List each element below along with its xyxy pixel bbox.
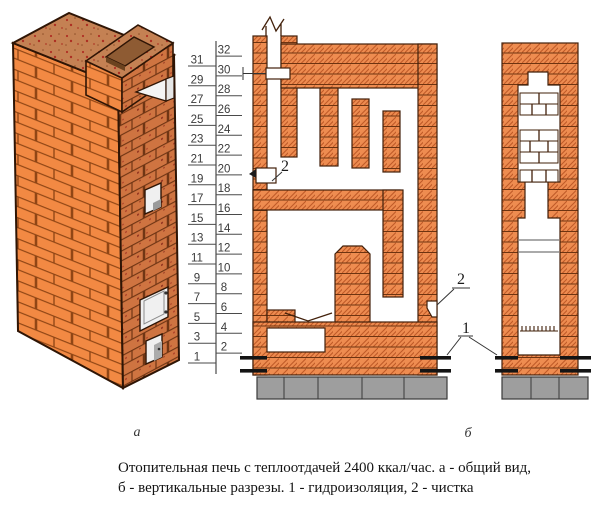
view-label-b: б [464, 426, 472, 441]
baffle-1 [320, 88, 338, 166]
firebox-back-column [335, 246, 370, 324]
callout-leader [437, 288, 470, 305]
scale-number: 8 [221, 282, 227, 294]
callout-leader [447, 336, 497, 355]
scale-number: 17 [191, 193, 204, 205]
scale-number: 27 [191, 94, 204, 106]
ash-pit [267, 328, 325, 352]
waterproofing-line [495, 369, 518, 373]
firebox-door-hinge [164, 310, 167, 313]
stove-3d-view [13, 13, 179, 388]
scale-number: 15 [191, 213, 204, 225]
scale-number: 28 [218, 84, 231, 96]
top-slab [281, 44, 437, 88]
baffle-2 [352, 99, 369, 168]
caption-line-2: б - вертикальные разрезы. 1 - гидроизоля… [118, 478, 588, 498]
scale-number: 1 [194, 352, 200, 364]
under-door-block [267, 310, 295, 323]
scale-number: 9 [194, 272, 200, 284]
section-front [240, 17, 451, 399]
scale-number: 3 [194, 332, 200, 344]
section-side [495, 43, 591, 399]
scale-number: 25 [191, 114, 204, 126]
firebox-door-hinge [164, 291, 167, 294]
foundation-front [257, 377, 447, 399]
ash-door-knob [158, 348, 161, 351]
scale-number: 29 [191, 74, 204, 86]
callout-cleanout-right: 2 [457, 271, 465, 288]
caption-line-1: Отопительная печь с теплоотдачей 2400 кк… [118, 458, 588, 478]
scale-number: 32 [218, 45, 231, 57]
scale-number: 5 [194, 312, 200, 324]
descending-wall [383, 190, 403, 297]
chimney-break [262, 17, 284, 36]
scale-number: 24 [218, 124, 231, 136]
scale-number: 16 [218, 203, 231, 215]
scale-number: 12 [218, 243, 231, 255]
scale-number: 19 [191, 173, 204, 185]
scale-number: 10 [218, 262, 231, 274]
waterproofing-line [560, 356, 591, 360]
baffle-3 [383, 111, 400, 172]
scale-number: 30 [218, 64, 231, 76]
scale-number: 6 [221, 302, 227, 314]
waterproofing-line [420, 369, 451, 373]
scale-number: 20 [218, 163, 231, 175]
figure-caption: Отопительная печь с теплоотдачей 2400 кк… [118, 458, 588, 498]
scale-number: 18 [218, 183, 231, 195]
callout-waterproofing: 1 [462, 320, 470, 337]
view-label-a: а [134, 425, 141, 440]
foundation-side [502, 377, 588, 399]
waterproofing-line [240, 356, 267, 360]
side-upper-cavity [518, 72, 560, 182]
scale-number: 22 [218, 144, 231, 156]
scale-number: 21 [191, 154, 204, 166]
waterproofing-line [495, 356, 518, 360]
scale-number: 23 [191, 134, 204, 146]
course-scale: 1234567891011121314151617181920212223242… [188, 41, 242, 374]
scale-number: 4 [221, 322, 228, 334]
waterproofing-line [420, 356, 451, 360]
damper-plate [266, 68, 290, 79]
damper-handle-plate [166, 76, 174, 101]
scale-number: 11 [191, 253, 203, 265]
scale-number: 7 [194, 292, 200, 304]
waterproofing-line [240, 369, 267, 373]
figure-canvas: 1234567891011121314151617181920212223242… [0, 0, 600, 509]
scale-number: 31 [191, 55, 204, 67]
scale-number: 2 [221, 342, 227, 354]
waterproofing-line [560, 369, 591, 373]
scale-number: 14 [218, 223, 231, 235]
mid-slab [253, 190, 400, 210]
stove-diagram: 1234567891011121314151617181920212223242… [0, 0, 600, 509]
scale-number: 26 [218, 104, 231, 116]
scale-number: 13 [191, 233, 204, 245]
